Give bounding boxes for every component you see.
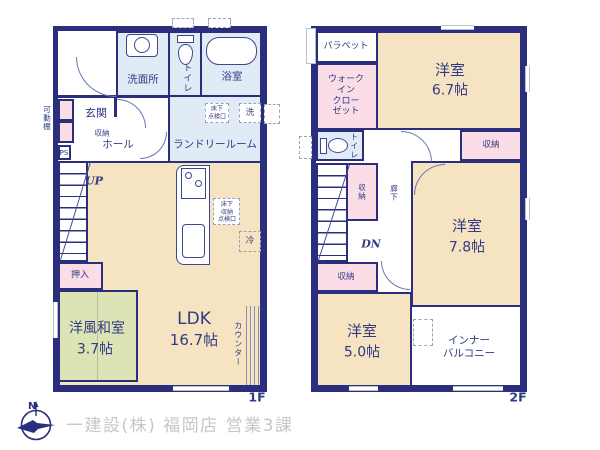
compass-north-icon: N: [12, 398, 60, 446]
f2-room-bedroom-a: [376, 31, 522, 130]
tatami-name-label: 洋風和室: [69, 321, 125, 338]
f1-outer-wall-right: [262, 26, 267, 392]
f2-window-balcony-south: [453, 386, 503, 391]
stove-burner-icon: [195, 180, 202, 187]
f2-window-bedroom-c-south: [349, 386, 378, 391]
movable-shelf-label: 可動棚: [43, 105, 52, 131]
f2-toilet-bowl-icon: [328, 138, 348, 153]
hallway-label: 廊下: [390, 185, 399, 202]
f1-window-ldk-south: [173, 386, 229, 391]
oshiire-label: 押入: [71, 271, 89, 282]
wic-label: ウォーク イン クロー ゼット: [328, 74, 364, 117]
bedroom-b-size-label: 7.8帖: [449, 240, 485, 257]
entrance-label: 玄関: [85, 106, 107, 119]
dn-label: DN: [361, 237, 381, 250]
f2-outdoor-unit-box: [299, 136, 312, 159]
f1-outer-wall-bottom: [53, 387, 267, 392]
f2-storage-b-label: 収納: [358, 184, 367, 201]
bedroom-b-name-label: 洋室: [452, 217, 482, 235]
kitchen-sink-icon: [182, 224, 205, 258]
bedroom-a-size-label: 6.7帖: [432, 83, 468, 100]
counter-label: カウンター: [233, 322, 243, 367]
washroom-label: 洗面所: [127, 74, 159, 87]
floor2-label: 2F: [509, 390, 526, 405]
bathtub-icon: [206, 37, 257, 65]
tatami-size-label: 3.7帖: [77, 342, 113, 359]
f2-window-bedroom-b-east: [525, 198, 530, 220]
fridge-label: 冷: [246, 236, 255, 246]
ps-label: PS: [60, 149, 69, 157]
washbasin-bowl-icon: [134, 37, 150, 53]
bedroom-c-size-label: 5.0帖: [344, 345, 380, 362]
up-label: UP: [85, 174, 103, 187]
f2-vent-bedroom-a-north: [441, 25, 474, 30]
entrance-storage-label: 収納: [95, 129, 110, 138]
f2-stairs: [316, 163, 348, 262]
balcony-hatch-box: [413, 319, 433, 346]
f2-parapet-edge: [306, 28, 316, 64]
bath-label: 浴室: [222, 71, 243, 84]
f2-toilet-label: トイレ: [349, 133, 359, 160]
washer-label: 洗: [246, 108, 255, 118]
company-name: 一建設(株) 福岡店 営業3課: [66, 411, 293, 436]
inner-balcony-label: インナー バルコニー: [443, 334, 495, 359]
laundry-label: ランドリールーム: [173, 139, 257, 152]
f1-window-tatami-west: [53, 302, 58, 338]
svg-text:N: N: [28, 401, 36, 412]
floor-plan-image: 洗面所 トイレ 浴室 玄関 収納 可動棚 PS ホール ランドリールーム 床下 …: [0, 0, 600, 450]
f1-vent-toilet: [172, 18, 194, 28]
f1-underfloor-hatch-label: 床下 点検口: [208, 106, 226, 121]
outdoor-unit-box: [264, 104, 280, 124]
f1-toilet-label: トイレ: [181, 63, 192, 93]
f2-storage-c-label: 収納: [337, 272, 354, 282]
f1-vent-bath: [208, 18, 231, 28]
stove-burner-icon: [185, 172, 192, 179]
bedroom-c-name-label: 洋室: [347, 322, 377, 340]
hall-label: ホール: [102, 139, 134, 152]
f1-shelf-upper: [58, 99, 74, 121]
parapet-label: パラペット: [323, 42, 368, 53]
ldk-name-label: LDK: [177, 309, 211, 329]
f2-window-bedroom-a-east: [525, 66, 530, 92]
counter-hatch: [246, 306, 262, 385]
f1-shelf-lower: [58, 121, 74, 143]
f1-underfloor-storage-label: 床下 収納 点検口: [218, 201, 236, 224]
ldk-size-label: 16.7帖: [170, 331, 218, 349]
bedroom-a-name-label: 洋室: [435, 61, 465, 79]
f1-toilet-tank-icon: [177, 35, 194, 43]
f2-storage-a-label: 収納: [482, 140, 499, 150]
f1-stairs: [58, 161, 88, 262]
floor1-label: 1F: [248, 390, 265, 405]
f2-toilet-tank-icon: [320, 138, 327, 154]
